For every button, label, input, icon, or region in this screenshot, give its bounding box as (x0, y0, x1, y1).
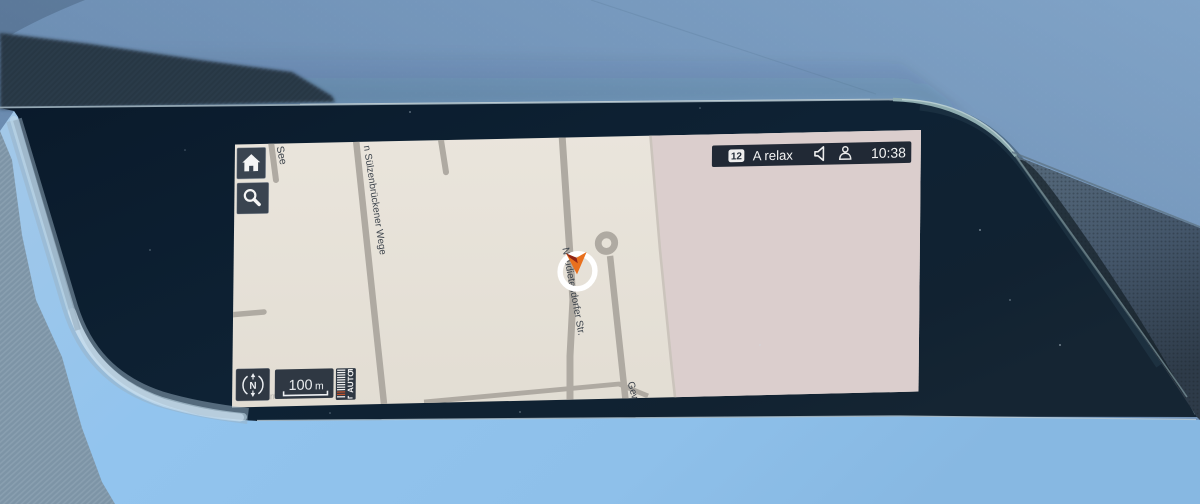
svg-text:A relax: A relax (753, 148, 794, 164)
svg-text:10:38: 10:38 (871, 144, 906, 161)
svg-text:m: m (315, 381, 324, 392)
svg-text:12: 12 (731, 151, 743, 162)
svg-text:N: N (249, 381, 256, 392)
svg-text:100: 100 (288, 377, 312, 394)
svg-text:AUTO: AUTO (346, 370, 355, 393)
